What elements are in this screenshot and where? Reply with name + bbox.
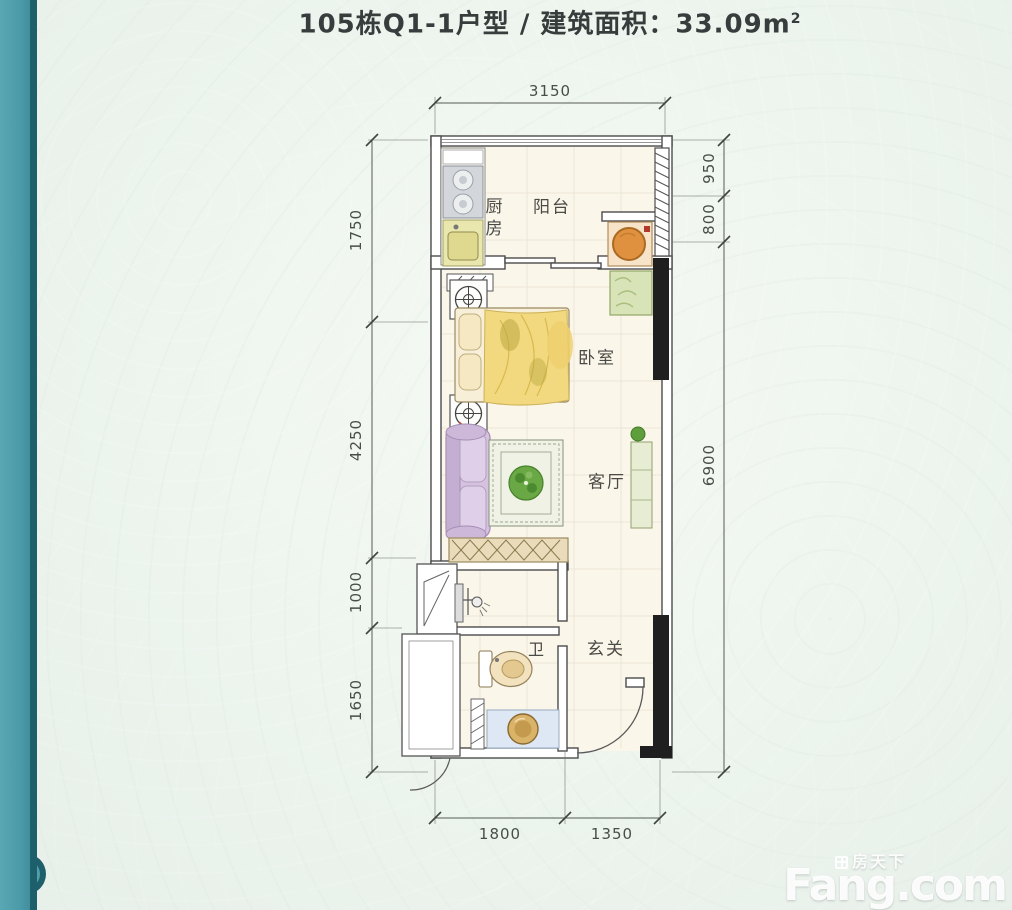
dim-left-1650: 1650 <box>347 679 365 721</box>
stove-icon <box>443 166 483 218</box>
sofa-icon <box>446 424 490 542</box>
dim-bottom-1800: 1800 <box>479 825 521 843</box>
washing-machine-icon <box>608 222 652 266</box>
floorplan-canvas <box>0 0 1012 910</box>
towel-rack-icon <box>471 699 484 749</box>
dim-left-1000: 1000 <box>347 571 365 613</box>
basin-icon <box>487 710 559 748</box>
platform-door-arc <box>410 758 450 790</box>
dim-right-800: 800 <box>700 203 718 235</box>
dim-left-4250: 4250 <box>347 419 365 461</box>
room-label-entry: 玄关 <box>587 635 625 660</box>
room-label-bedroom: 卧室 <box>578 344 616 369</box>
dim-bottom-1350: 1350 <box>591 825 633 843</box>
plant-icon <box>509 466 543 500</box>
fang-watermark: 房天下 Fang.com <box>783 854 1006 908</box>
utility-shaft-box <box>417 564 457 634</box>
watermark-en: Fang.com <box>783 864 1006 908</box>
room-label-balcony: 阳台 <box>533 193 571 218</box>
toilet-icon <box>479 651 532 687</box>
dim-left-1750: 1750 <box>347 209 365 251</box>
tv-cabinet-icon <box>631 427 652 528</box>
floorplan-page: 105栋Q1-1户型 / 建筑面积：33.09m2 <box>0 0 1012 910</box>
bar-table-icon <box>449 538 568 562</box>
bed-icon <box>455 308 573 405</box>
kitchen-sink-icon <box>443 220 483 266</box>
equipment-platform-box <box>402 634 460 790</box>
page-title: 105栋Q1-1户型 / 建筑面积：33.09m2 <box>298 4 801 41</box>
dim-right-6900: 6900 <box>700 444 718 486</box>
wardrobe-icon <box>610 271 652 315</box>
hatched-wall-icon <box>655 148 669 256</box>
room-label-kitchen: 厨房 <box>480 197 505 241</box>
room-label-bathroom: 卫 <box>528 636 546 660</box>
room-label-living-room: 客厅 <box>588 468 626 493</box>
page-title-text: 105栋Q1-1户型 / 建筑面积：33.09m <box>298 10 790 40</box>
page-title-superscript: 2 <box>791 11 802 27</box>
dim-top-width: 3150 <box>529 82 571 100</box>
dim-right-950: 950 <box>700 152 718 184</box>
